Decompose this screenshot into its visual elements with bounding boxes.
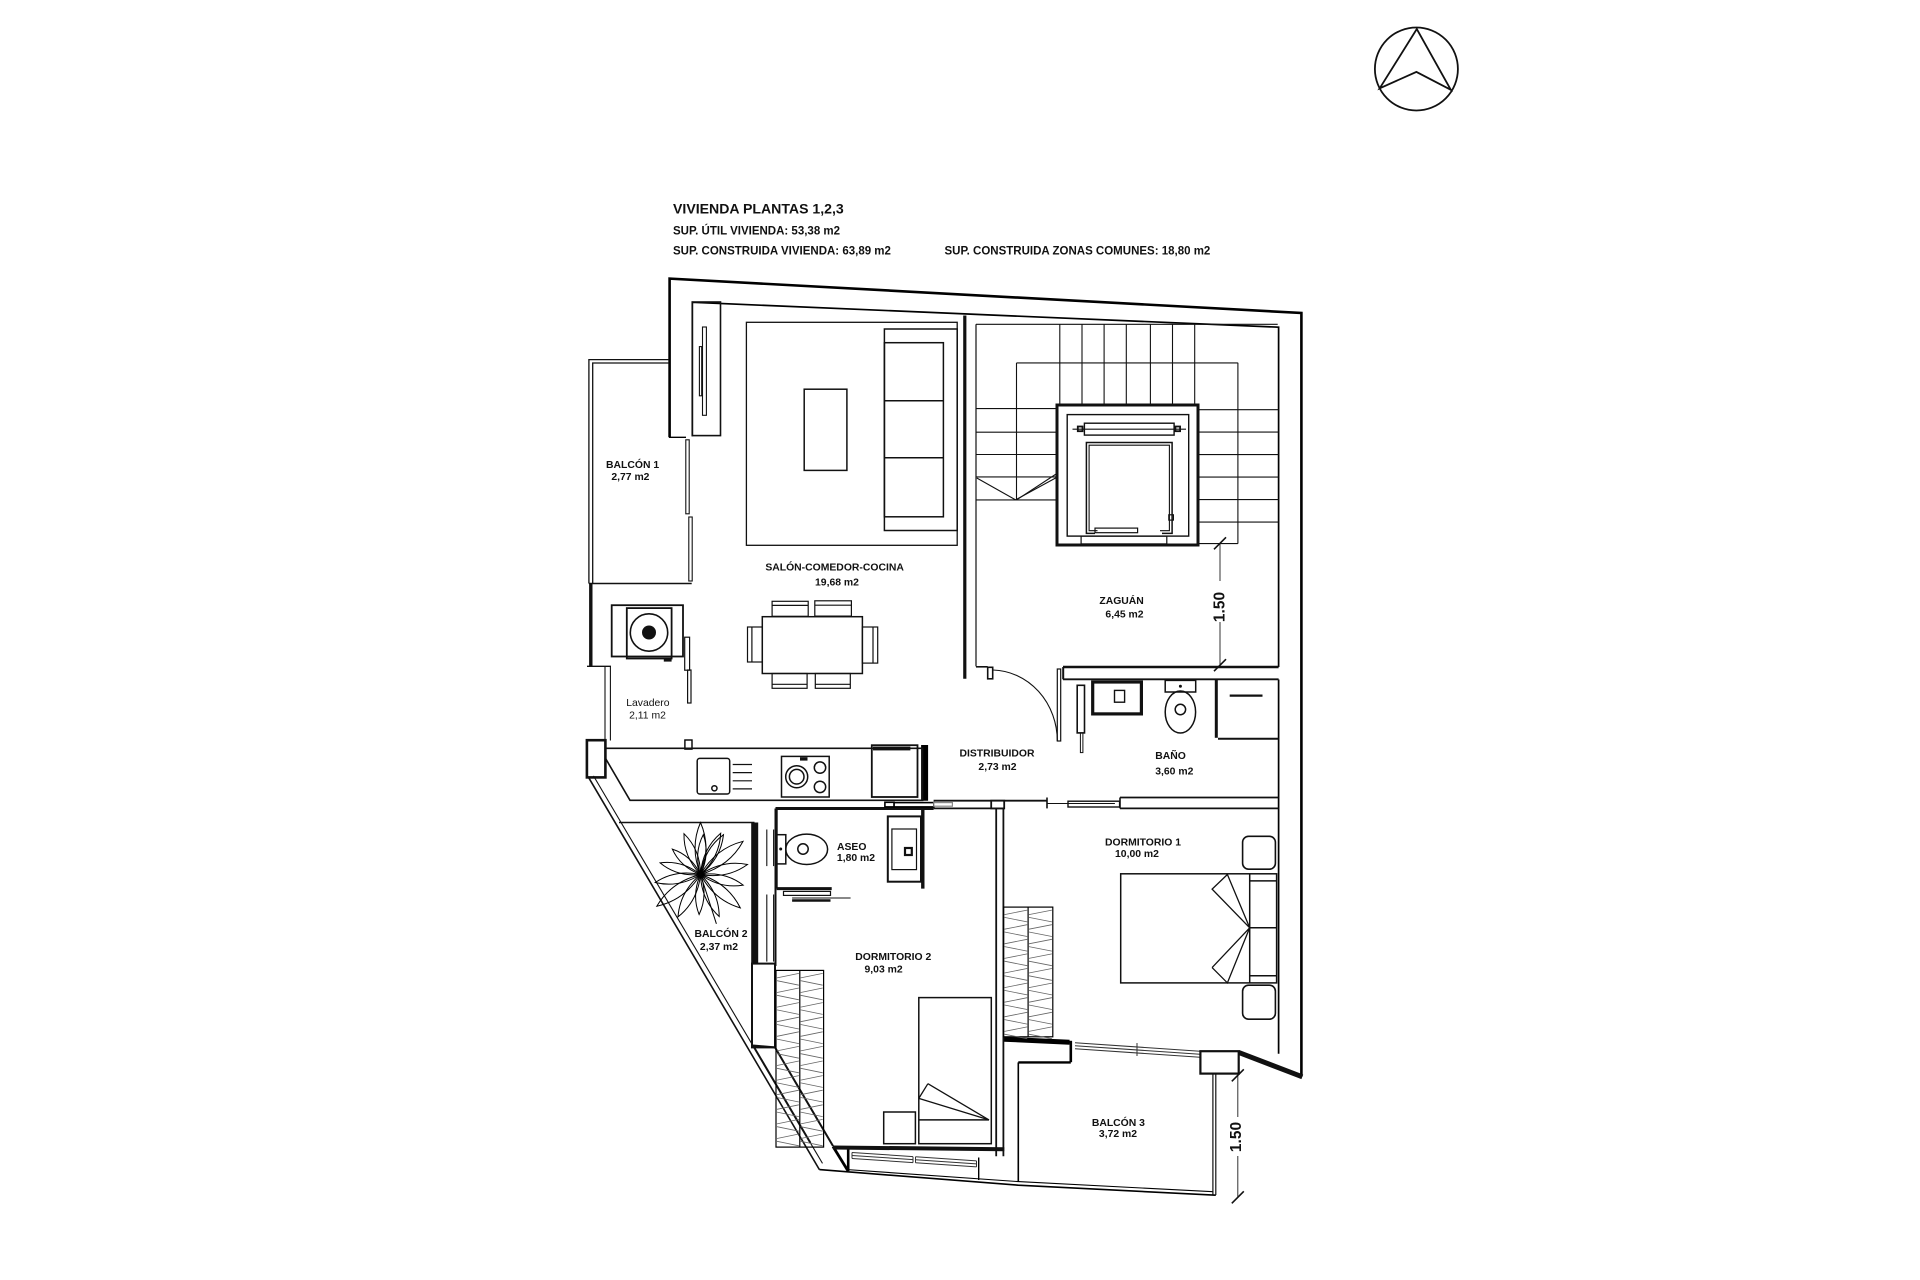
svg-text:3,72 m2: 3,72 m2 xyxy=(1099,1129,1137,1140)
svg-text:2,73 m2: 2,73 m2 xyxy=(978,762,1016,773)
svg-text:DISTRIBUIDOR: DISTRIBUIDOR xyxy=(959,749,1035,760)
svg-text:10,00 m2: 10,00 m2 xyxy=(1115,849,1159,860)
svg-text:2,77 m2: 2,77 m2 xyxy=(611,472,649,483)
svg-text:ZAGUÁN: ZAGUÁN xyxy=(1099,594,1143,607)
svg-text:SALÓN-COMEDOR-COCINA: SALÓN-COMEDOR-COCINA xyxy=(765,561,904,574)
svg-text:1,80 m2: 1,80 m2 xyxy=(837,853,875,864)
svg-text:3,60 m2: 3,60 m2 xyxy=(1155,766,1193,777)
svg-text:SUP. ÚTIL VIVIENDA: 53,38 m2: SUP. ÚTIL VIVIENDA: 53,38 m2 xyxy=(673,224,840,237)
svg-text:19,68 m2: 19,68 m2 xyxy=(815,578,859,589)
svg-text:SUP. CONSTRUIDA VIVIENDA: 63,8: SUP. CONSTRUIDA VIVIENDA: 63,89 m2 xyxy=(673,245,891,257)
svg-text:2,11 m2: 2,11 m2 xyxy=(629,711,666,722)
svg-text:Lavadero: Lavadero xyxy=(626,698,670,709)
svg-text:ASEO: ASEO xyxy=(837,842,866,853)
svg-text:1.50: 1.50 xyxy=(1228,1122,1245,1152)
svg-text:BAÑO: BAÑO xyxy=(1155,749,1186,762)
svg-text:SUP. CONSTRUIDA ZONAS COMUNES:: SUP. CONSTRUIDA ZONAS COMUNES: 18,80 m2 xyxy=(945,245,1211,257)
svg-text:1.50: 1.50 xyxy=(1212,592,1229,622)
svg-text:DORMITORIO 1: DORMITORIO 1 xyxy=(1105,837,1181,848)
svg-text:VIVIENDA PLANTAS 1,2,3: VIVIENDA PLANTAS 1,2,3 xyxy=(673,201,844,217)
svg-text:BALCÓN 1: BALCÓN 1 xyxy=(606,458,659,471)
svg-text:6,45 m2: 6,45 m2 xyxy=(1105,610,1143,621)
svg-text:2,37 m2: 2,37 m2 xyxy=(700,942,738,953)
svg-text:DORMITORIO 2: DORMITORIO 2 xyxy=(855,952,931,963)
svg-text:BALCÓN 2: BALCÓN 2 xyxy=(694,927,747,940)
svg-text:BALCÓN 3: BALCÓN 3 xyxy=(1092,1116,1145,1129)
svg-text:9,03 m2: 9,03 m2 xyxy=(865,965,903,976)
